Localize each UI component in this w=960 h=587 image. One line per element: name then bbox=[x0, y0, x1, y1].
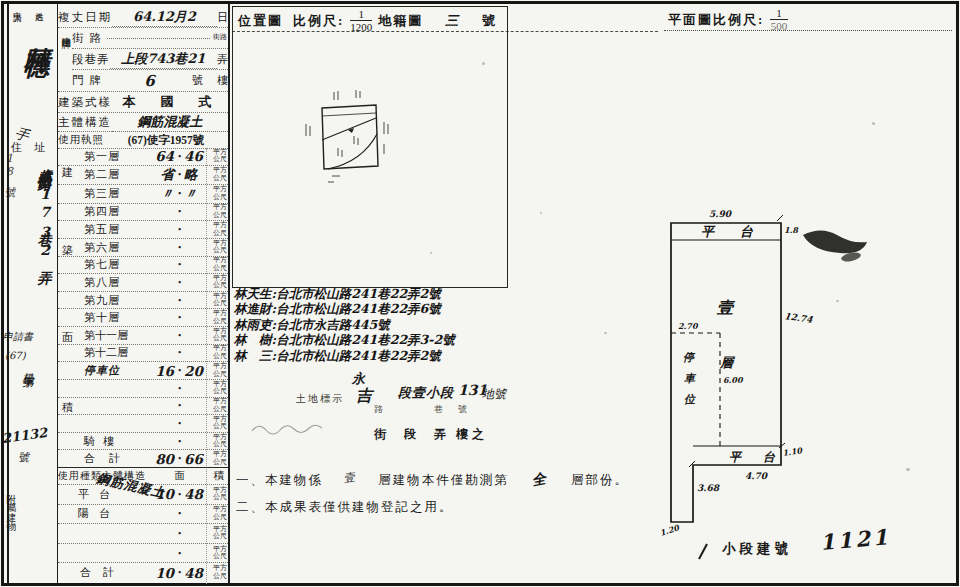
floor-int: 〃 bbox=[124, 185, 174, 203]
unit-label: 平方公尺 bbox=[213, 240, 228, 255]
floor-total-row: 合計80・66平方公尺 bbox=[58, 450, 228, 468]
decimal-dot: ・ bbox=[174, 222, 184, 237]
main-structure-label: 主體構造 bbox=[58, 115, 112, 130]
location-sketch bbox=[298, 86, 433, 191]
annex-int: 10 bbox=[124, 565, 174, 581]
application-doc-word: 申請書 bbox=[3, 330, 33, 344]
parking-label: 停車位 bbox=[58, 363, 124, 378]
scanned-building-survey-form: 申請人 姓名 林阿德 手 住址 18號 歲书松山路417巷32弄 申請書 (67… bbox=[0, 0, 960, 587]
unit-label: 平方公尺 bbox=[213, 381, 228, 396]
decimal-dot: ・ bbox=[174, 293, 184, 308]
building-style-value: 本 國 式 bbox=[112, 93, 228, 111]
street-unit: 街路 bbox=[213, 34, 228, 42]
decimal-dot: ・ bbox=[174, 310, 184, 325]
annex-label: 陽台 bbox=[58, 506, 124, 521]
floor-label: 第十二層 bbox=[58, 345, 124, 360]
decimal-dot: ・ bbox=[174, 275, 184, 290]
address-handwritten: 歲书松山路417巷32弄 bbox=[36, 158, 54, 373]
door-number-label: 門牌 bbox=[72, 73, 107, 88]
owner-address: 台北市松山路241巷22弄2號 bbox=[276, 348, 441, 363]
land-subsection: 段壹小段 bbox=[398, 384, 454, 402]
note1-fill-surveyed-floor: 全 bbox=[530, 470, 549, 491]
building-number-label: 小段建號 bbox=[722, 540, 792, 558]
floor-dec: 66 bbox=[184, 451, 210, 467]
decimal-dot: ・ bbox=[174, 487, 184, 502]
use-license-value: (67)使字1957號 bbox=[104, 133, 228, 148]
decimal-dot: ・ bbox=[174, 363, 184, 378]
door-plate-group: 建物門牌 街路 街路 段巷弄 上段743巷21 弄 門牌 6 號 樓 bbox=[58, 28, 228, 92]
floor-row-5: 第五層・平方公尺 bbox=[58, 221, 228, 239]
floor-dec: 20 bbox=[184, 363, 210, 379]
note1-fill-floor-count: 壹 bbox=[343, 469, 358, 486]
unit-label: 平方公尺 bbox=[213, 363, 228, 378]
floor-row-4: 第四層・平方公尺 bbox=[58, 204, 228, 222]
blank-row: ・平方公尺 bbox=[58, 380, 228, 398]
template-street: 街 bbox=[374, 426, 386, 443]
owner-name: 林 三 bbox=[234, 348, 272, 363]
floor-row-6: 第六層・平方公尺 bbox=[58, 239, 228, 257]
floor-row-3: 第三層〃・〃平方公尺 bbox=[58, 185, 228, 204]
floor-row-8: 第八層・平方公尺 bbox=[58, 274, 228, 292]
scan-speck bbox=[482, 62, 485, 65]
plan-scale-numerator: 1 bbox=[770, 8, 788, 20]
faint-handwriting-scribble bbox=[248, 416, 338, 438]
floor-int: 16 bbox=[124, 363, 174, 379]
lane-unit: 弄 bbox=[217, 52, 228, 67]
floor-area-table: 第一層64・46平方公尺 第二層省・略平方公尺 第三層〃・〃平方公尺 第四層・平… bbox=[58, 148, 228, 468]
unit-label: 平方公尺 bbox=[213, 222, 228, 237]
floor-label: 第六層 bbox=[58, 240, 124, 255]
floor-row-1: 第一層64・46平方公尺 bbox=[58, 148, 228, 166]
ink-smudge bbox=[803, 231, 867, 263]
template-number-top: 號 bbox=[458, 403, 467, 416]
street-label: 街路 bbox=[72, 31, 107, 46]
decimal-dot: ・ bbox=[174, 434, 184, 449]
plan-scale-fraction: 1 500 bbox=[770, 8, 788, 32]
owner-line: 林天生:台北市松山路241巷22弄2號 bbox=[234, 286, 455, 301]
main-structure-value: 鋼筋混凝土 bbox=[112, 113, 228, 132]
pen-stroke-mark bbox=[698, 544, 708, 560]
decimal-dot: ・ bbox=[174, 240, 184, 255]
note-line-2: 二、本成果表僅供建物登記之用。 bbox=[236, 499, 454, 516]
application-doc-series: 松地二字第 bbox=[19, 364, 34, 434]
blank-row: ・平方公尺 bbox=[58, 398, 228, 416]
floor-plan-header: 平面圖比例尺: 1 500 bbox=[668, 8, 794, 32]
plan-bottom-width-dim: 4.70 bbox=[745, 471, 769, 481]
decimal-dot: ・ bbox=[174, 328, 184, 343]
unit-label: 平方公尺 bbox=[213, 167, 228, 182]
house-number-side: 18號 bbox=[1, 152, 16, 178]
decimal-dot: ・ bbox=[174, 149, 184, 164]
survey-date-value: 64.12月2 bbox=[112, 8, 217, 27]
form-header-block: 複丈日期 64.12月2 日 建物門牌 街路 街路 段巷弄 上段743巷21 弄… bbox=[58, 8, 228, 149]
floor-label: 第八層 bbox=[58, 275, 124, 290]
decimal-dot: ・ bbox=[174, 381, 184, 396]
scan-speck bbox=[836, 300, 839, 302]
decimal-dot: ・ bbox=[174, 398, 184, 413]
main-structure-row: 主體構造 鋼筋混凝土 bbox=[58, 113, 228, 132]
template-lane-top: 巷 bbox=[434, 403, 443, 416]
floor-label: 第十一層 bbox=[58, 328, 124, 343]
unit-label: 平方公尺 bbox=[213, 434, 228, 449]
floor-dec: 〃 bbox=[184, 185, 210, 203]
lane-value: 上段743巷21 bbox=[110, 50, 218, 69]
decimal-dot: ・ bbox=[174, 526, 184, 541]
application-doc-year: (67) bbox=[5, 350, 26, 361]
scan-speck bbox=[906, 468, 910, 471]
lane-label: 段巷弄 bbox=[72, 52, 110, 67]
plan-top-width-dim: 5.90 bbox=[709, 209, 733, 219]
unit-label: 平方公尺 bbox=[213, 204, 228, 219]
door-number-unit: 樓 bbox=[217, 73, 228, 88]
owner-name: 林雨吏 bbox=[234, 317, 272, 332]
plan-parking-char-3: 位 bbox=[684, 393, 696, 406]
scan-speck bbox=[604, 332, 607, 334]
unit-label: 平方公尺 bbox=[213, 186, 228, 201]
plan-parking-depth-dim: 6.00 bbox=[723, 375, 744, 385]
annex-total-label: 合計 bbox=[58, 565, 124, 580]
floor-row-10: 第十層・平方公尺 bbox=[58, 309, 228, 327]
building-number-value: 1121 bbox=[819, 524, 891, 555]
plan-top-platform-label: 平台 bbox=[701, 224, 779, 239]
decimal-dot: ・ bbox=[174, 345, 184, 360]
floor-int: 省 bbox=[124, 166, 174, 184]
floor-dec: 略 bbox=[184, 166, 210, 184]
annex-header-right: 積 bbox=[214, 469, 225, 483]
annex-dec: 48 bbox=[184, 565, 210, 581]
door-plate-group-label: 建物門牌 bbox=[58, 28, 72, 91]
unit-label: 平方公尺 bbox=[213, 149, 228, 164]
scan-speck bbox=[430, 252, 432, 254]
note1-text-c: 層部份。 bbox=[571, 473, 629, 487]
decimal-dot: ・ bbox=[174, 416, 184, 431]
arcade-label: 騎樓 bbox=[58, 434, 124, 449]
template-lane: 弄 bbox=[434, 426, 446, 443]
blank-row: ・平方公尺 bbox=[58, 415, 228, 433]
owner-name: 林進財 bbox=[234, 301, 272, 316]
plan-header-underline bbox=[664, 30, 952, 31]
floor-plan-drawing: 5.90 平台 1.8 壹 層 12.74 2.70 6.00 停 車 位 平台… bbox=[653, 193, 888, 545]
annex-side-label: 附屬建物 bbox=[4, 486, 18, 522]
unit-label: 平方公尺 bbox=[213, 546, 228, 561]
land-marker-label: 土地標示 bbox=[296, 392, 344, 406]
total-label: 合計 bbox=[58, 451, 124, 466]
template-road-top: 路 bbox=[374, 403, 383, 416]
use-license-row: 使用執照 (67)使字1957號 bbox=[58, 132, 228, 149]
note-line-1: 一、本建物係 壹 層建物本件僅勘測第 全 層部份。 bbox=[236, 471, 629, 489]
note1-text-a: 一、本建物係 bbox=[236, 473, 323, 487]
unit-label: 平方公尺 bbox=[213, 506, 228, 521]
arcade-row: 騎樓・平方公尺 bbox=[58, 433, 228, 451]
owner-line: 林雨吏:台北市永吉路445號 bbox=[234, 317, 455, 332]
applicant-name-handwritten: 林阿德 bbox=[20, 26, 53, 38]
floor-label: 第五層 bbox=[58, 222, 124, 237]
unit-label: 平方公尺 bbox=[213, 416, 228, 431]
owner-address: 台北市松山路241巷22弄2號 bbox=[276, 286, 441, 301]
floor-label: 第七層 bbox=[58, 257, 124, 272]
building-style-label: 建築式樣 bbox=[58, 95, 112, 110]
survey-date-row: 複丈日期 64.12月2 日 bbox=[58, 8, 228, 28]
floor-label: 第四層 bbox=[58, 204, 124, 219]
owner-line: 林 樹:台北市松山路241巷22弄3-2號 bbox=[234, 332, 455, 347]
floor-label: 第九層 bbox=[58, 293, 124, 308]
plan-left-segment-dim: 3.68 bbox=[697, 483, 721, 493]
floor-dec: 46 bbox=[184, 148, 210, 164]
plan-parking-char-1: 停 bbox=[683, 351, 696, 364]
form-right-divider bbox=[228, 4, 230, 583]
street-row: 街路 街路 bbox=[72, 28, 228, 49]
door-number-suffix: 號 bbox=[192, 73, 203, 88]
floor-row-2: 第二層省・略平方公尺 bbox=[58, 166, 228, 185]
owner-address: 台北市松山路241巷22弄3-2號 bbox=[276, 332, 455, 347]
annex-row-balcony: 陽台・平方公尺 bbox=[58, 505, 228, 525]
unit-label: 平方公尺 bbox=[213, 487, 228, 502]
template-floor-of: 樓之 bbox=[456, 426, 488, 443]
parking-row: 停車位16・20平方公尺 bbox=[58, 362, 228, 380]
unit-label: 平方公尺 bbox=[213, 310, 228, 325]
applicant-name-label: 姓名 bbox=[34, 5, 46, 7]
street-value bbox=[107, 38, 210, 39]
decimal-dot: ・ bbox=[174, 506, 184, 521]
annex-dec: 48 bbox=[184, 486, 210, 502]
unit-label: 平方公尺 bbox=[213, 275, 228, 290]
plan-corner-dim: 1.20 bbox=[659, 522, 682, 538]
land-section-char-bottom: 吉 bbox=[356, 386, 372, 407]
decimal-dot: ・ bbox=[174, 565, 184, 580]
floor-row-9: 第九層・平方公尺 bbox=[58, 292, 228, 310]
unit-label: 平方公尺 bbox=[213, 257, 228, 272]
floor-int: 80 bbox=[124, 451, 174, 467]
plan-floor-char: 層 bbox=[719, 355, 736, 370]
unit-label: 平方公尺 bbox=[213, 328, 228, 343]
use-license-label: 使用執照 bbox=[58, 133, 104, 147]
decimal-dot: ・ bbox=[174, 204, 184, 219]
template-duan: 段 bbox=[404, 426, 416, 443]
owner-address: 台北市松山路241巷22弄6號 bbox=[276, 301, 441, 316]
floor-label: 第三層 bbox=[58, 186, 124, 201]
plan-right-height-dim: 12.74 bbox=[784, 311, 814, 325]
plan-bottom-strip-height-dim: 1.10 bbox=[782, 445, 804, 458]
owner-address: 台北市永吉路445號 bbox=[276, 317, 390, 332]
decimal-dot: ・ bbox=[174, 546, 184, 561]
plan-scale-label: 平面圖比例尺: bbox=[668, 11, 764, 29]
owner-name: 林天生 bbox=[234, 286, 272, 301]
unit-label: 平方公尺 bbox=[213, 398, 228, 413]
annex-row-blank: ・平方公尺 bbox=[58, 544, 228, 564]
floor-label: 第十層 bbox=[58, 310, 124, 325]
scan-speck bbox=[540, 212, 542, 214]
application-doc-number-unit: 號 bbox=[18, 450, 29, 465]
unit-label: 平方公尺 bbox=[213, 526, 228, 541]
building-style-row: 建築式樣 本 國 式 bbox=[58, 92, 228, 113]
land-lot-suffix: 地號 bbox=[482, 386, 506, 403]
decimal-dot: ・ bbox=[174, 451, 184, 466]
annex-total-row: 合計10・48平方公尺 bbox=[58, 563, 228, 582]
lane-row: 段巷弄 上段743巷21 弄 bbox=[72, 49, 228, 70]
unit-label: 平方公尺 bbox=[213, 565, 228, 580]
floor-label: 第二層 bbox=[58, 167, 124, 182]
applicant-label: 申請人 bbox=[12, 5, 24, 8]
unit-label: 平方公尺 bbox=[213, 345, 228, 360]
door-number-row: 門牌 6 號 樓 bbox=[72, 70, 228, 91]
owner-line: 林進財:台北市松山路241巷22弄6號 bbox=[234, 301, 455, 316]
plan-floor-one-char: 壹 bbox=[716, 298, 736, 317]
owner-name: 林 樹 bbox=[234, 332, 272, 347]
scan-speck bbox=[872, 122, 875, 125]
annex-header-mid: 面 bbox=[146, 469, 214, 483]
floor-label: 第一層 bbox=[58, 149, 124, 164]
decimal-dot: ・ bbox=[174, 257, 184, 272]
unit-label: 平方公尺 bbox=[213, 293, 228, 308]
plan-parking-width-dim: 2.70 bbox=[678, 321, 699, 331]
survey-date-unit: 日 bbox=[217, 10, 228, 25]
annex-row-blank: ・平方公尺 bbox=[58, 524, 228, 544]
floor-int: 64 bbox=[124, 148, 174, 164]
unit-label: 平方公尺 bbox=[213, 451, 228, 466]
owner-address-list: 林天生:台北市松山路241巷22弄2號 林進財:台北市松山路241巷22弄6號 … bbox=[234, 286, 455, 363]
plan-strip-depth-dim: 1.8 bbox=[784, 225, 799, 235]
door-number-value: 6 bbox=[107, 72, 192, 90]
floor-row-12: 第十二層・平方公尺 bbox=[58, 345, 228, 363]
note1-text-b: 層建物本件僅勘測第 bbox=[378, 473, 509, 487]
floor-row-7: 第七層・平方公尺 bbox=[58, 257, 228, 275]
decimal-dot: ・ bbox=[174, 186, 184, 201]
address-label: 住址 bbox=[11, 140, 57, 155]
survey-date-label: 複丈日期 bbox=[58, 10, 112, 25]
floor-row-11: 第十一層・平方公尺 bbox=[58, 327, 228, 345]
owner-line: 林 三:台北市松山路241巷22弄2號 bbox=[234, 348, 455, 363]
plan-parking-char-2: 車 bbox=[684, 372, 697, 385]
decimal-dot: ・ bbox=[174, 167, 184, 182]
